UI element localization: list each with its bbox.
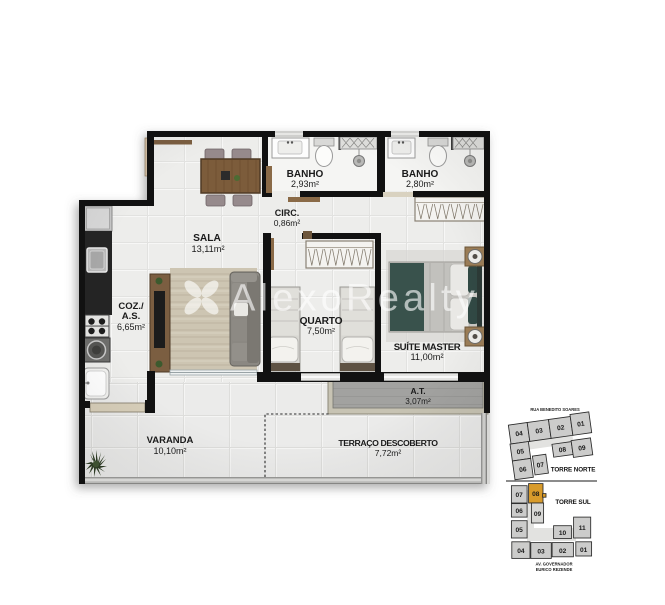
svg-text:04: 04: [517, 548, 525, 555]
svg-text:AV. GOVERNADOR: AV. GOVERNADOR: [535, 562, 572, 567]
svg-text:A.S.: A.S.: [122, 311, 140, 322]
svg-text:10: 10: [559, 530, 567, 537]
svg-text:11,00m²: 11,00m²: [410, 352, 443, 362]
svg-text:7,50m²: 7,50m²: [307, 326, 335, 336]
svg-text:0,86m²: 0,86m²: [274, 218, 301, 228]
svg-text:EURICO REZENDE: EURICO REZENDE: [536, 567, 573, 572]
svg-text:06: 06: [519, 466, 528, 474]
svg-text:02: 02: [559, 548, 567, 555]
svg-text:04: 04: [515, 430, 524, 438]
svg-text:08: 08: [558, 446, 567, 454]
svg-text:A.T.: A.T.: [410, 386, 425, 396]
svg-text:09: 09: [534, 511, 542, 518]
svg-text:TORRE SUL: TORRE SUL: [555, 499, 591, 506]
svg-text:VARANDA: VARANDA: [147, 435, 194, 446]
svg-text:13,11m²: 13,11m²: [191, 244, 224, 254]
svg-text:2,93m²: 2,93m²: [291, 179, 319, 189]
svg-text:03: 03: [537, 549, 545, 556]
svg-text:CIRC.: CIRC.: [275, 208, 300, 218]
svg-text:11: 11: [579, 525, 586, 532]
svg-text:TORRE NORTE: TORRE NORTE: [551, 467, 596, 474]
svg-text:01: 01: [580, 547, 588, 554]
svg-text:09: 09: [578, 445, 587, 453]
svg-text:05: 05: [516, 527, 524, 534]
svg-text:2,80m²: 2,80m²: [406, 179, 434, 189]
svg-text:AlexoRealty: AlexoRealty: [230, 278, 479, 320]
svg-text:SALA: SALA: [193, 233, 221, 244]
svg-text:02: 02: [557, 424, 566, 432]
svg-text:06: 06: [516, 508, 524, 515]
svg-text:03: 03: [535, 427, 544, 435]
svg-text:RUA BENEDITO SOARES: RUA BENEDITO SOARES: [530, 407, 580, 412]
svg-text:3,07m²: 3,07m²: [405, 397, 431, 406]
svg-text:TERRAÇO DESCOBERTO: TERRAÇO DESCOBERTO: [338, 438, 438, 448]
svg-text:10,10m²: 10,10m²: [153, 446, 186, 456]
svg-text:7,72m²: 7,72m²: [375, 448, 402, 458]
svg-text:07: 07: [516, 492, 524, 499]
svg-text:07: 07: [536, 462, 545, 470]
svg-text:08: 08: [532, 491, 540, 498]
svg-text:05: 05: [516, 448, 525, 456]
svg-text:6,65m²: 6,65m²: [117, 322, 145, 332]
svg-text:01: 01: [577, 421, 586, 429]
